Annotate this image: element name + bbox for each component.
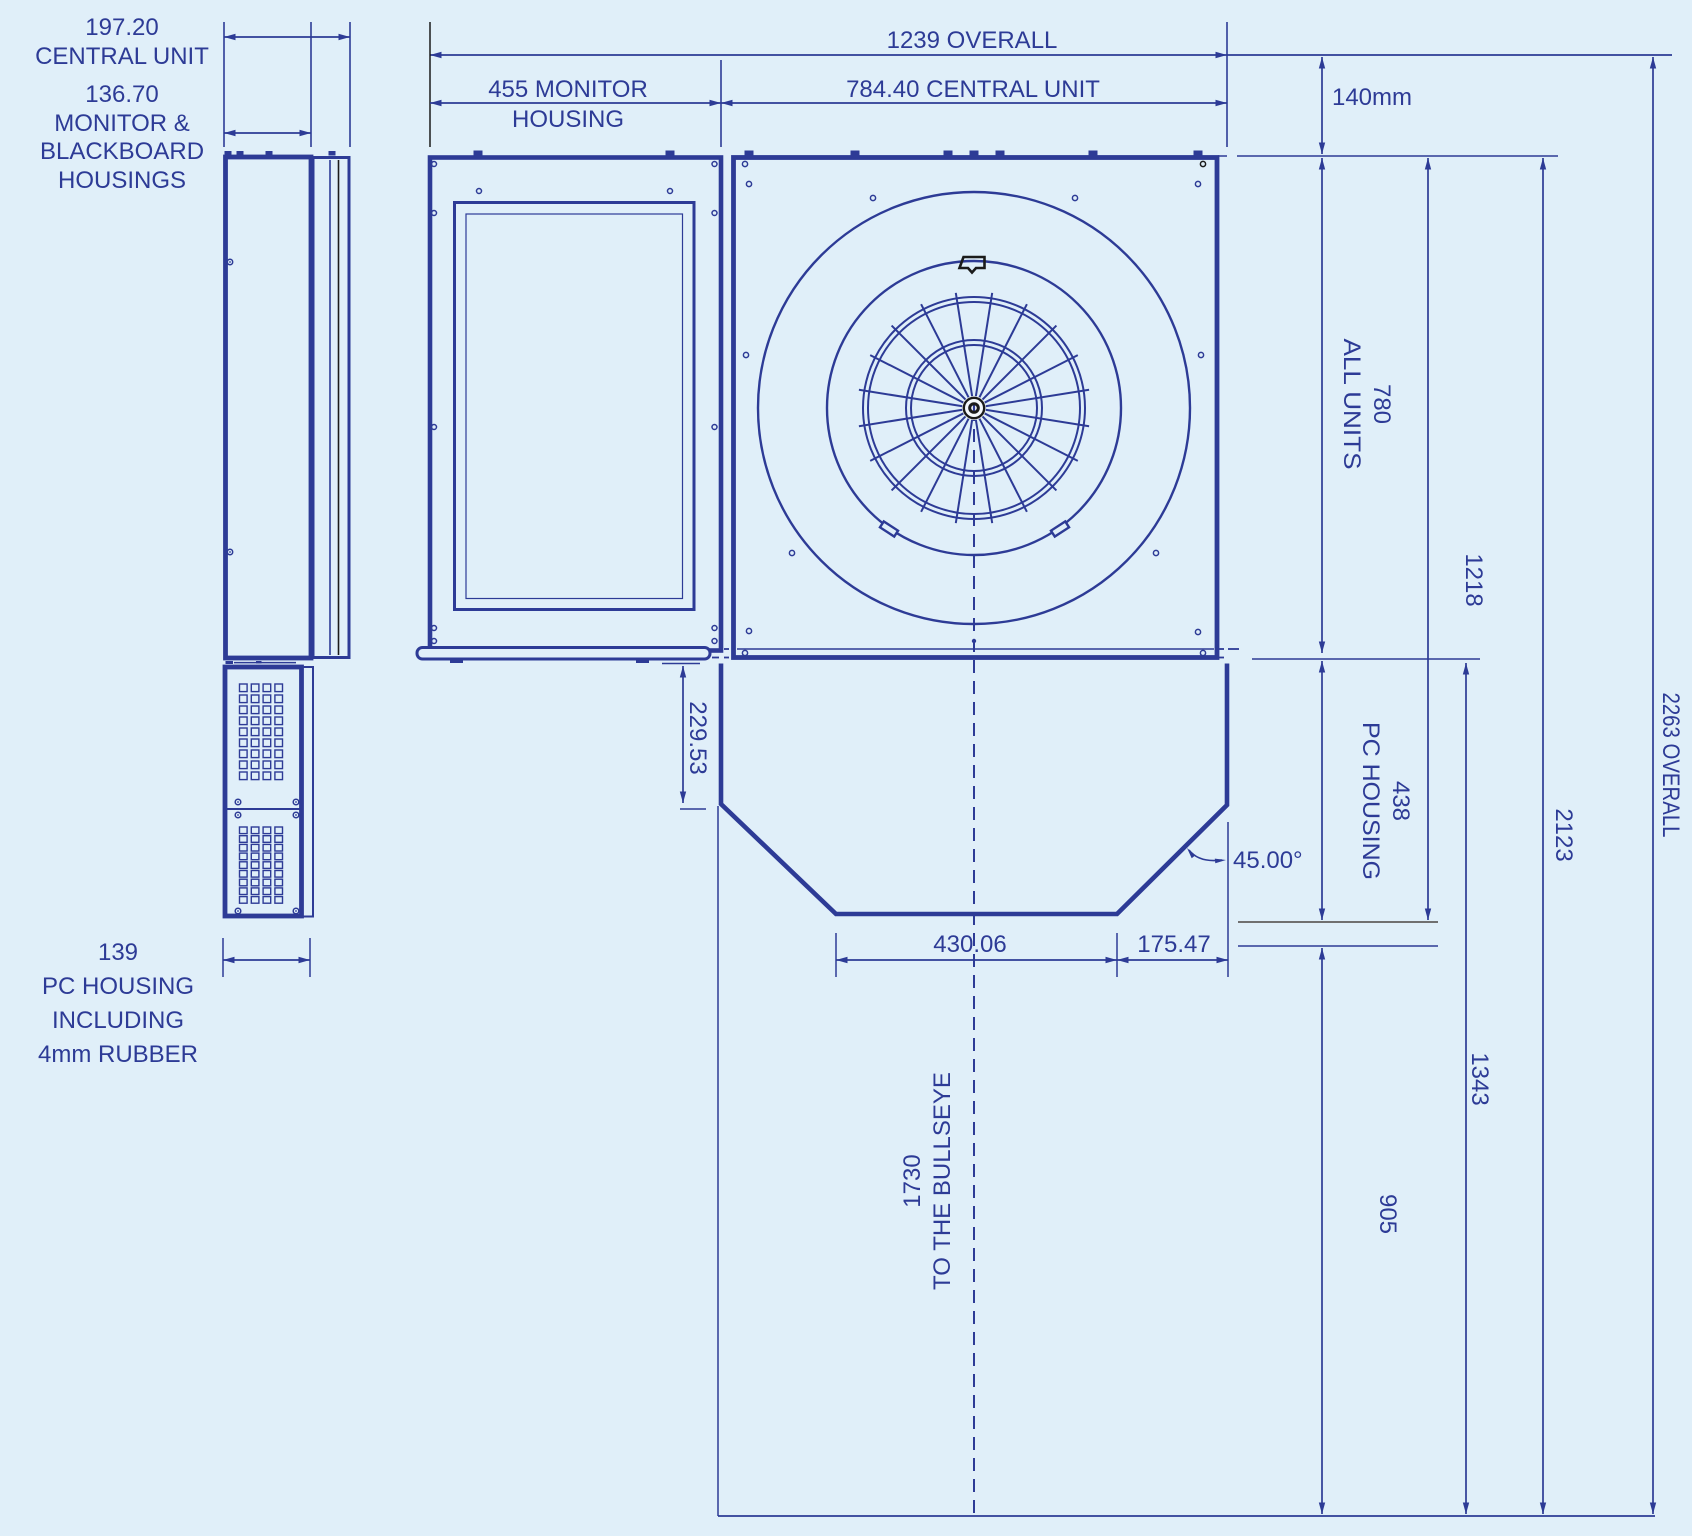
svg-text:430.06: 430.06 xyxy=(933,931,1006,958)
svg-text:PC HOUSING: PC HOUSING xyxy=(42,973,194,1000)
svg-text:INCLUDING: INCLUDING xyxy=(52,1007,184,1034)
svg-text:ALL UNITS: ALL UNITS xyxy=(1338,339,1365,470)
svg-text:2263 OVERALL: 2263 OVERALL xyxy=(1657,693,1684,838)
svg-text:45.00°: 45.00° xyxy=(1233,847,1303,874)
svg-text:136.70: 136.70 xyxy=(85,81,158,108)
svg-text:4mm RUBBER: 4mm RUBBER xyxy=(38,1041,198,1068)
svg-text:1218: 1218 xyxy=(1460,553,1487,606)
svg-text:455 MONITOR: 455 MONITOR xyxy=(488,76,648,103)
svg-text:HOUSING: HOUSING xyxy=(512,106,624,133)
svg-text:780: 780 xyxy=(1368,384,1395,424)
svg-text:140mm: 140mm xyxy=(1332,84,1412,111)
svg-text:1239 OVERALL: 1239 OVERALL xyxy=(887,27,1058,54)
svg-text:2123: 2123 xyxy=(1550,808,1577,861)
svg-text:1343: 1343 xyxy=(1466,1052,1493,1105)
svg-text:MONITOR &: MONITOR & xyxy=(54,110,190,137)
svg-text:784.40 CENTRAL UNIT: 784.40 CENTRAL UNIT xyxy=(846,76,1100,103)
svg-text:TO THE BULLSEYE: TO THE BULLSEYE xyxy=(929,1072,956,1290)
svg-text:CENTRAL UNIT: CENTRAL UNIT xyxy=(35,43,209,70)
svg-text:BLACKBOARD: BLACKBOARD xyxy=(40,138,204,165)
svg-text:HOUSINGS: HOUSINGS xyxy=(58,167,186,194)
svg-text:139: 139 xyxy=(98,939,138,966)
svg-text:229.53: 229.53 xyxy=(684,701,711,774)
svg-text:905: 905 xyxy=(1374,1194,1401,1234)
svg-text:1730: 1730 xyxy=(899,1154,926,1207)
svg-text:438: 438 xyxy=(1387,781,1414,821)
svg-text:197.20: 197.20 xyxy=(85,14,158,41)
svg-text:175.47: 175.47 xyxy=(1137,931,1210,958)
svg-text:PC HOUSING: PC HOUSING xyxy=(1357,722,1384,880)
